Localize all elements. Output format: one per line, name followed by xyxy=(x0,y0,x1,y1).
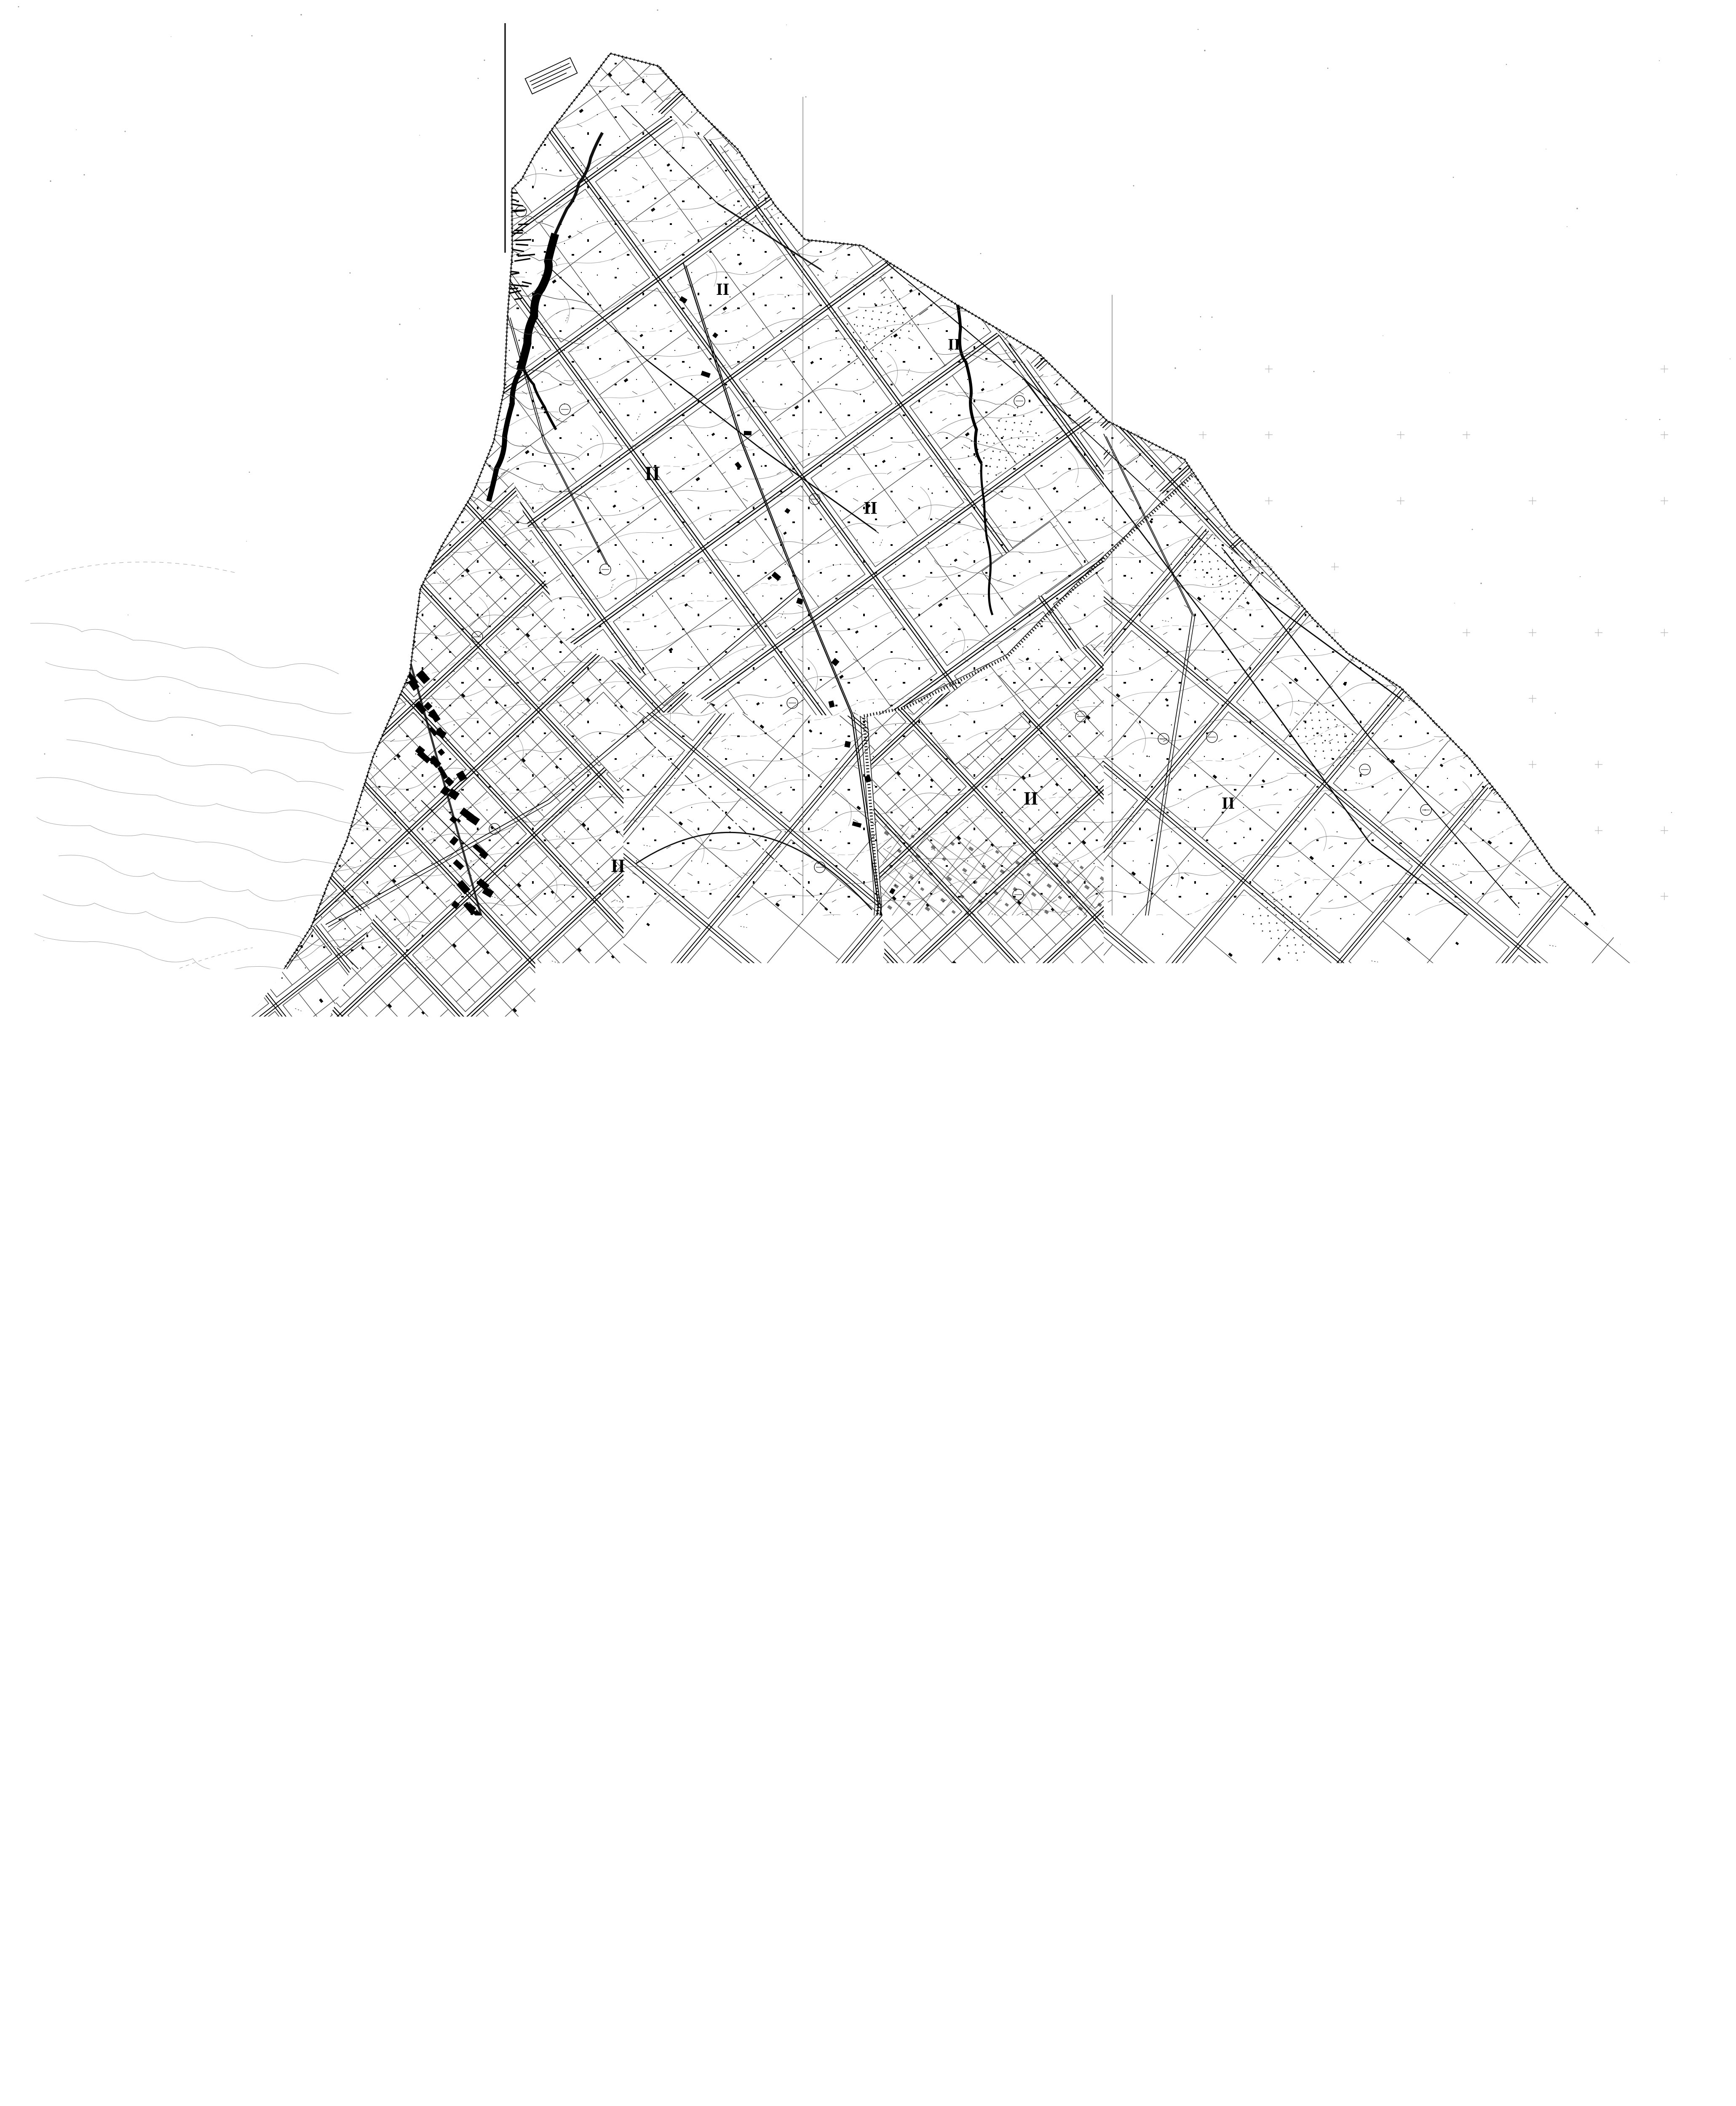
svg-text:II: II xyxy=(350,1615,363,1634)
svg-text:III: III xyxy=(476,2084,495,2101)
svg-text:II: II xyxy=(864,499,877,518)
svg-text:I: I xyxy=(206,1378,212,1393)
svg-text:III: III xyxy=(952,1713,971,1731)
svg-text:II: II xyxy=(497,1760,509,1777)
svg-text:III: III xyxy=(442,1860,461,1878)
svg-text:II: II xyxy=(1222,794,1235,812)
svg-text:II: II xyxy=(948,336,960,353)
svg-text:II: II xyxy=(611,855,625,876)
svg-text:II: II xyxy=(169,1326,181,1343)
svg-text:II: II xyxy=(914,1431,926,1448)
svg-text:II: II xyxy=(316,1206,330,1226)
svg-text:I: I xyxy=(923,1123,929,1141)
svg-text:II: II xyxy=(590,1692,602,1710)
svg-text:III: III xyxy=(632,2050,650,2067)
svg-text:I: I xyxy=(1230,1191,1236,1208)
svg-text:III: III xyxy=(1230,1688,1248,1705)
svg-text:I: I xyxy=(800,1799,806,1815)
svg-text:II: II xyxy=(1024,788,1038,809)
svg-text:II: II xyxy=(716,280,729,299)
svg-text:II: II xyxy=(645,462,660,485)
